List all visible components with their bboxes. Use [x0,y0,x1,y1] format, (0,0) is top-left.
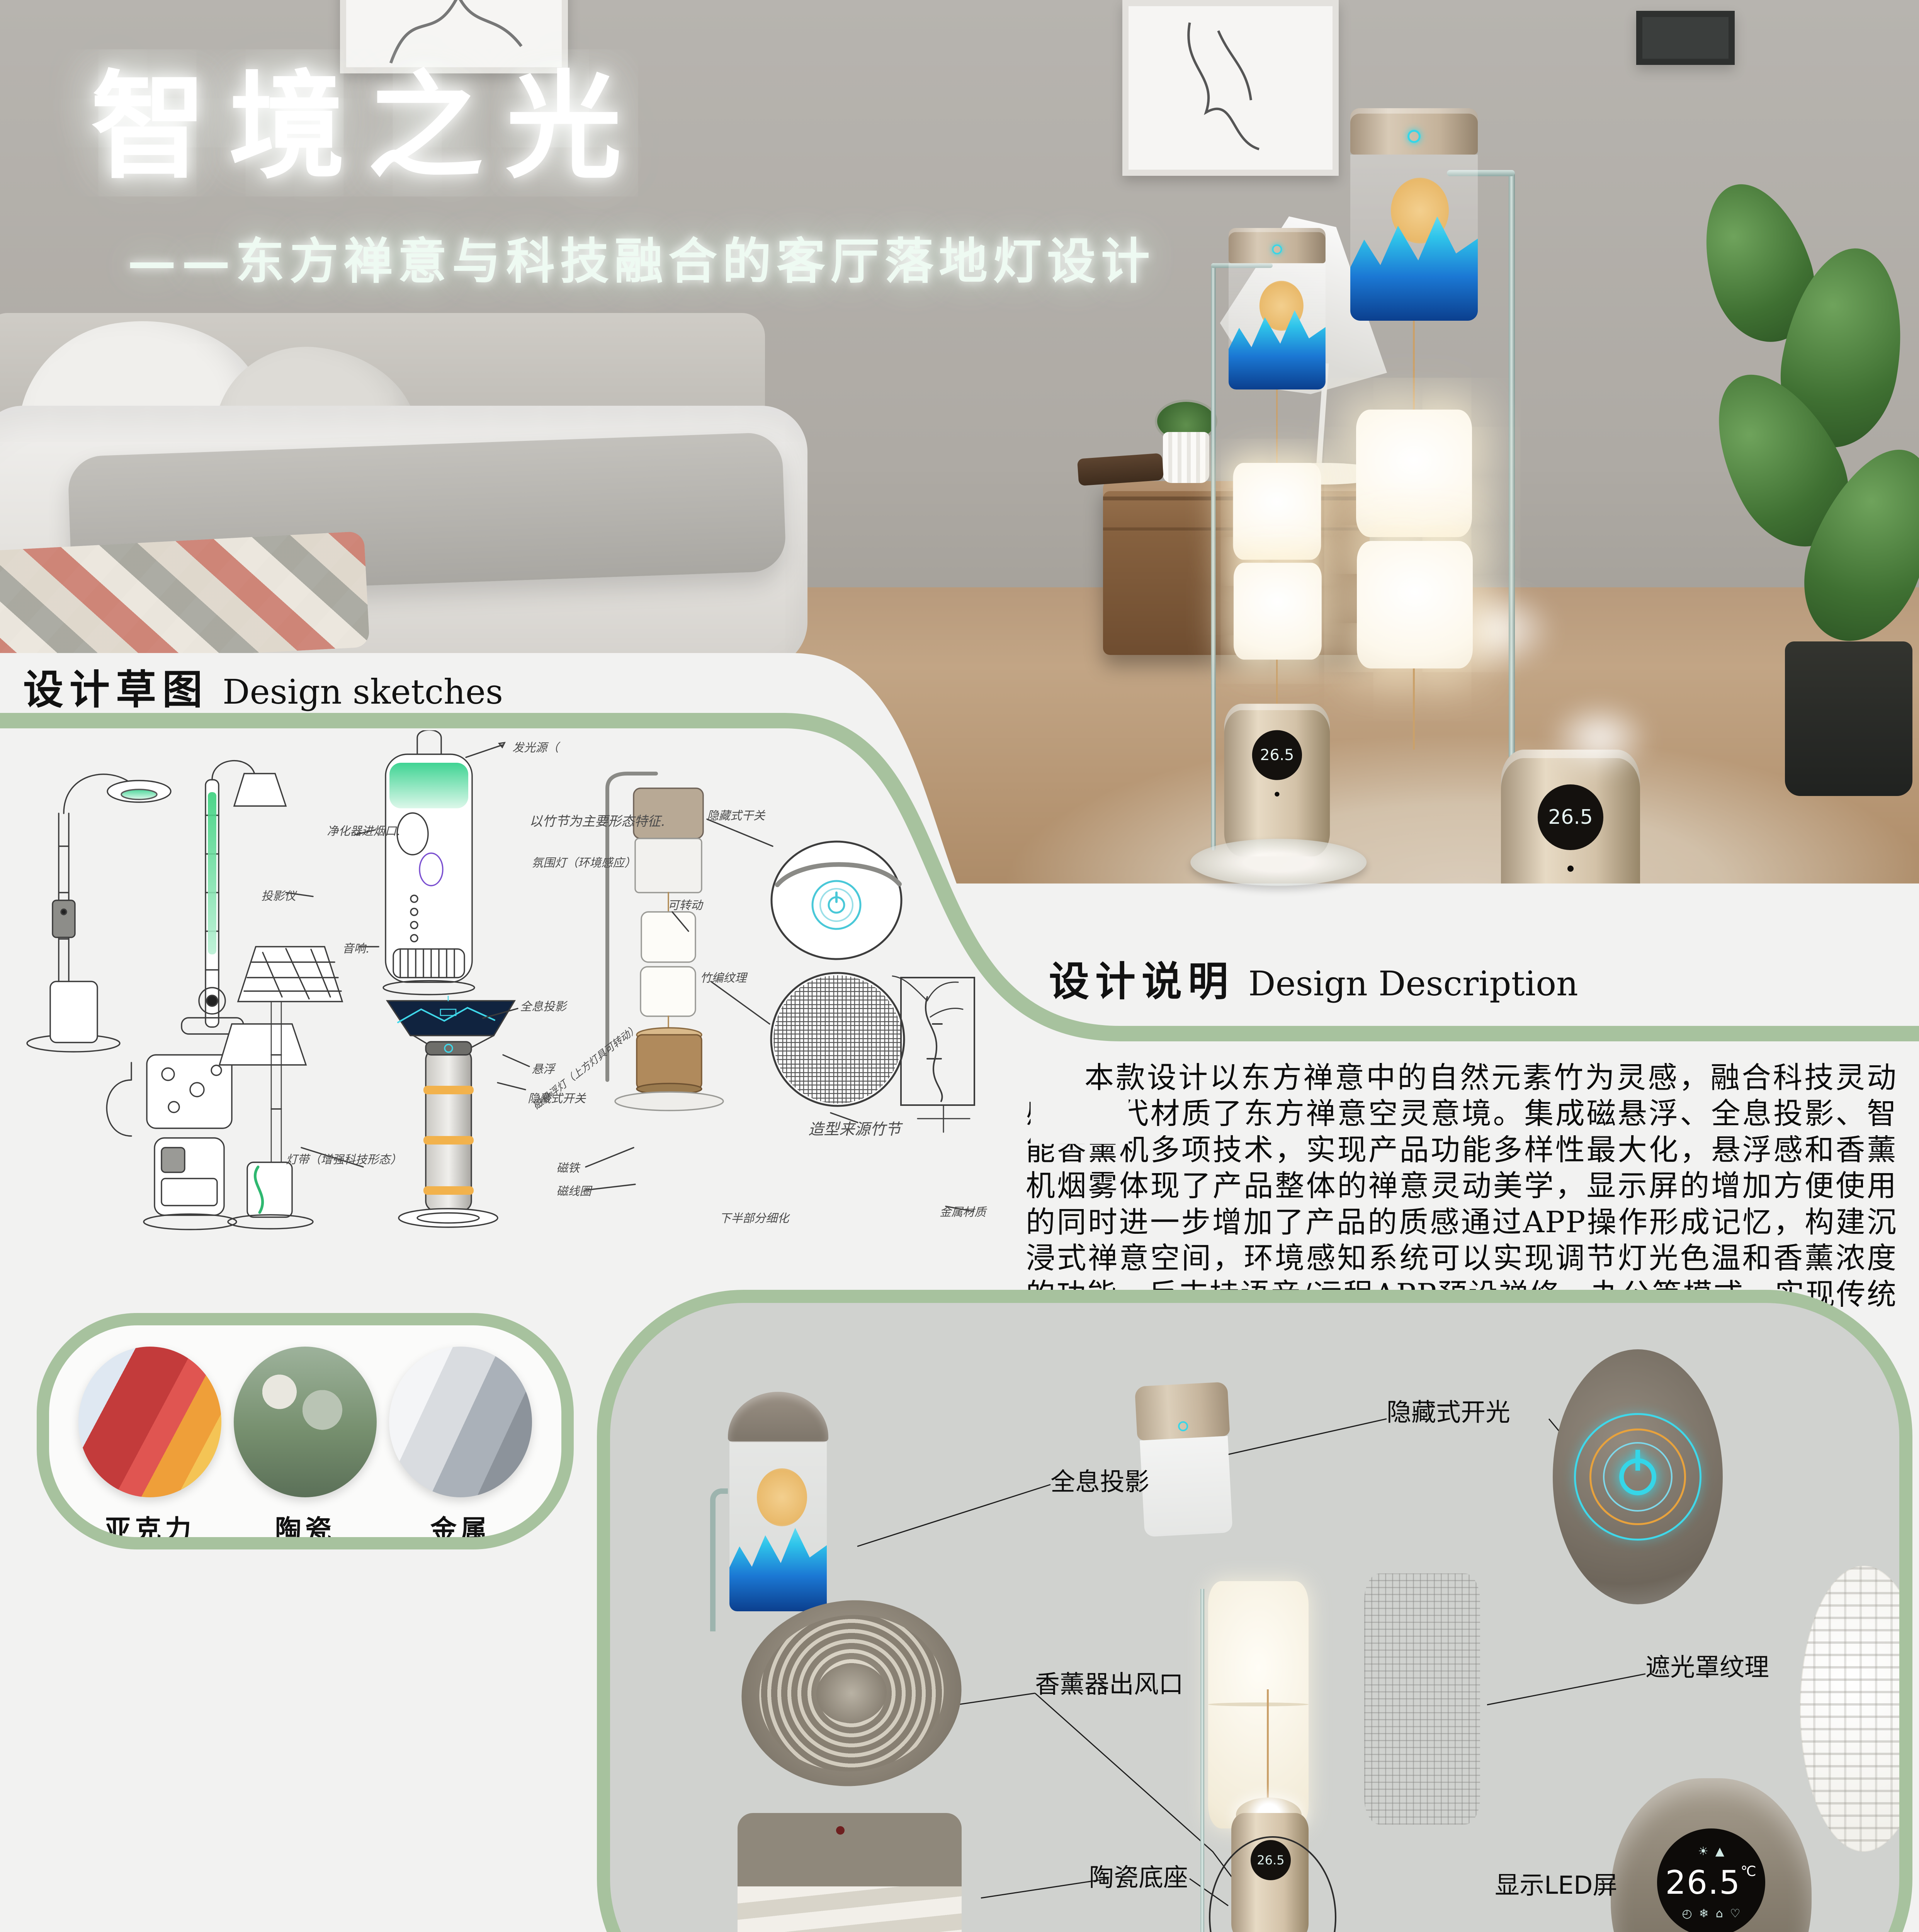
power-icon [1619,1458,1656,1495]
sketch-annotation: 灯带（增强科技形态） [286,1150,402,1167]
sketch-annotation: 造型来源竹节 [808,1117,901,1139]
wall-art-right [1122,0,1339,176]
label-aroma-outlet: 香薰器出风口 [1035,1665,1183,1700]
sketch-annotation: 隐藏式干关 [707,806,765,823]
header-sketches-en: Design sketches [223,672,503,712]
sketch-annotation: 磁铁 [556,1158,580,1175]
label-holo-projection: 全息投影 [1050,1462,1149,1498]
holo-cylinder-detail [728,1392,828,1631]
lantern-shade-upper [1356,410,1472,537]
swatch [341,1730,385,1808]
colorway-brown: 26.5 [468,1808,535,1932]
header-material-zh: 材质分析 [23,1249,209,1307]
header-colors-en: Source of color matching [223,1599,658,1638]
callout-ellipse [1209,1836,1336,1932]
header-description-en: Design Description [1248,964,1578,1003]
lantern-shade-lower [1357,541,1473,668]
sketch-annotation: 以竹节为主要形态特征. [529,811,665,830]
shade-texture-closeup [1800,1566,1912,1852]
label-shade-texture: 遮光罩纹理 [1645,1648,1769,1683]
colorway-gray: 26.5 [341,1812,407,1932]
sketch-annotation: 金属材质 [940,1202,986,1219]
color-source-panel: 26.5 26.5 26.5 26.5 [19,1641,574,1932]
plant-pot-white [1163,432,1209,483]
acrylic-label: 亚克力 [105,1508,195,1546]
sketch-annotation: 净化器进烟口. [327,821,400,838]
swatch [119,1730,163,1808]
swatch [385,1730,430,1808]
swatch-img [296,1730,341,1808]
triangle-throw [0,531,370,667]
ceramic-base-closeup [738,1813,962,1932]
sketch-annotation: 氛围灯（环境感应） [532,853,636,870]
colorway-beige: 26.5 [80,1823,146,1932]
header-material-en: Material Analysis [223,1264,523,1304]
led-screen: ☀▲ 26.5℃ ◴❄⌂♡ [1657,1828,1765,1932]
mood-desert [30,1653,163,1730]
sketch-annotation: 音响. [342,939,369,956]
mood-forest [430,1653,563,1730]
led-temp-value: 26.5 [1665,1864,1741,1901]
material-metal: 金属 [389,1347,532,1546]
wall-art-dark [1636,11,1735,65]
sketch-annotation: 发光源（ [512,738,559,755]
top-cylinder-detail [1135,1382,1236,1541]
header-description: 设计说明 Design Description [1049,949,1578,1007]
header-colors-zh: 配色来源 [23,1583,209,1642]
poster-title: 智境之光 [91,33,644,201]
poster-canvas: 26.5 26.5 智境之光 —— [0,0,1919,1932]
lamp-touch-ring [1272,245,1282,255]
sketch-drawings [15,730,1012,1233]
colorway-row: 26.5 26.5 26.5 26.5 [30,1808,563,1932]
lamp-base-detail: 26.5 [1186,1751,1363,1932]
header-description-zh: 设计说明 [1049,949,1234,1007]
sketch-annotation: 竹编纹理 [700,968,746,985]
swatch [75,1730,119,1808]
acrylic-image [78,1347,221,1497]
sketch-annotation: 下半部分细化 [719,1209,789,1226]
lantern-shade-lower [1234,563,1322,660]
header-colors: 配色来源 Source of color matching [23,1583,658,1642]
material-ceramic: 陶瓷 [234,1347,377,1546]
swatch-img [430,1730,474,1808]
lamp-touch-ring [1407,130,1421,143]
metal-image [389,1347,532,1497]
header-material: 材质分析 Material Analysis [23,1249,523,1307]
lantern-shade-upper [1233,463,1321,560]
swatch-row [30,1730,563,1808]
mood-rocks [296,1653,430,1730]
header-detail: 细节展示 Show in detail [628,1238,1074,1297]
metal-label: 金属 [430,1508,491,1546]
floor-lamp-right: 26.5 [1350,108,1478,321]
material-acrylic: 亚克力 [78,1347,221,1546]
ceramic-image [234,1347,377,1497]
swatch [518,1730,563,1808]
hidden-switch-detail [1553,1349,1723,1604]
mood-ocean [163,1653,297,1730]
mood-image-row [30,1653,563,1730]
sketch-annotation: 全息投影 [520,997,566,1014]
design-sketches-panel: 发光源（ 净化器进烟口. 投影仪 音响. 以竹节为主要形态特征. 氛围灯（环境感… [15,730,1012,1233]
swatch [252,1730,296,1808]
ceramic-label: 陶瓷 [275,1508,335,1546]
sketch-annotation: 可转动 [668,896,702,913]
swatch [207,1730,252,1808]
lantern-shade-wireframe [1364,1573,1480,1825]
header-sketches-zh: 设计草图 [23,657,209,715]
swatch-img [30,1730,75,1808]
sketch-annotation: 悬浮 [532,1060,555,1077]
sketch-annotation: 磁线圈 [556,1182,591,1199]
header-detail-zh: 细节展示 [628,1238,813,1297]
poster-subtitle: ——东方禅意与科技融合的客厅落地灯设计 [127,222,1155,293]
material-analysis-panel: 亚克力 陶瓷 金属 [37,1313,574,1549]
label-ceramic-base: 陶瓷底座 [1089,1858,1188,1893]
header-sketches: 设计草图 Design sketches [23,657,503,715]
colorway-white: 26.5 [209,1818,276,1932]
swatch-img [163,1730,208,1808]
led-temp-unit: ℃ [1741,1864,1757,1879]
label-hidden-switch: 隐藏式开光 [1387,1393,1510,1428]
sketch-annotation: 投影仪 [261,886,296,903]
detail-showcase-panel: 26.5 ☀▲ 26.5℃ ◴❄⌂♡ 全息投影 隐藏式开光 香薰器出风口 遮光罩… [597,1290,1912,1932]
label-led-screen: 显示LED屏 [1495,1866,1617,1901]
floor-lamp-left: 26.5 [1229,228,1326,389]
swatch [474,1730,518,1808]
